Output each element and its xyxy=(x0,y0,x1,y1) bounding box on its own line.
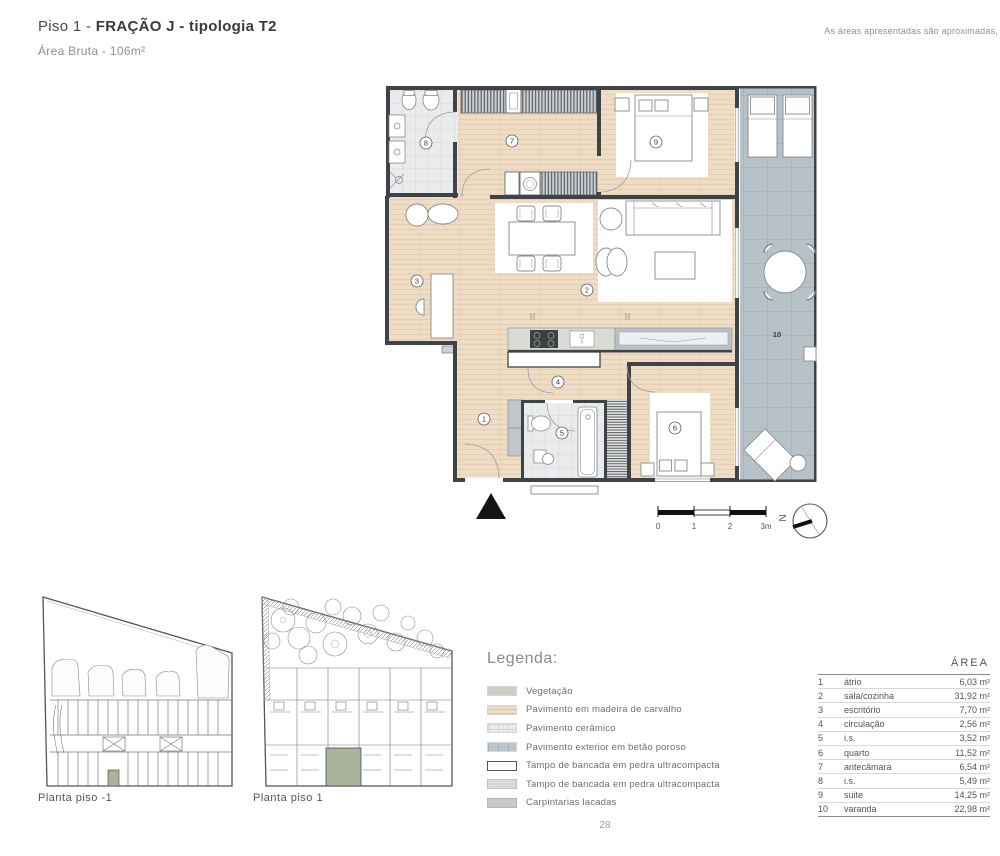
room-label-2: 2 xyxy=(581,284,593,296)
room-label-5: 5 xyxy=(556,427,568,439)
legend-title: Legenda: xyxy=(487,650,787,668)
svg-text:6: 6 xyxy=(673,424,677,433)
lacquered-carpentry-swatch xyxy=(487,798,517,808)
stone-counter-gray-swatch xyxy=(487,779,517,789)
vegetation-swatch xyxy=(487,686,517,696)
table-row: 3escritório7,70 m² xyxy=(818,703,990,717)
legend-item-porous-concrete: Pavimento exterior em betão poroso xyxy=(487,738,787,757)
room-label-10: 10 xyxy=(773,330,781,339)
title-regular: Piso 1 - xyxy=(38,18,96,35)
approx-areas-note: As áreas apresentadas são aproximadas, xyxy=(824,26,998,36)
legend-item-stone-counter-gray: Tampo de bancada em pedra ultracompacta xyxy=(487,775,787,794)
svg-text:8: 8 xyxy=(424,139,428,148)
legend: Legenda: Vegetação Pavimento em madeira … xyxy=(487,650,787,812)
svg-text:4: 4 xyxy=(556,378,560,387)
ceramic-floor-swatch xyxy=(487,723,517,733)
table-row: 8i.s.5,49 m² xyxy=(818,774,990,788)
table-row: 4circulação2,56 m² xyxy=(818,718,990,732)
site-plan-minus1: Planta piso -1 xyxy=(28,590,240,806)
svg-text:2: 2 xyxy=(728,522,733,531)
table-row: 5i.s.3,52 m² xyxy=(818,732,990,746)
svg-text:1: 1 xyxy=(692,522,697,531)
svg-text:1: 1 xyxy=(482,415,486,424)
svg-text:5: 5 xyxy=(560,429,564,438)
porous-concrete-swatch xyxy=(487,742,517,752)
legend-item-ceramic-floor: Pavimento cerâmico xyxy=(487,719,787,738)
table-row: 1átrio6,03 m² xyxy=(818,675,990,689)
oak-floor-swatch xyxy=(487,705,517,715)
room-label-7: 7 xyxy=(506,135,518,147)
legend-item-oak-floor: Pavimento em madeira de carvalho xyxy=(487,701,787,720)
area-table-header: ÁREA xyxy=(818,655,990,675)
room-label-9: 9 xyxy=(650,136,662,148)
legend-item-vegetation: Vegetação xyxy=(487,682,787,701)
site-plan-minus1-caption: Planta piso -1 xyxy=(38,792,112,804)
table-row: 2sala/cozinha31,92 m² xyxy=(818,689,990,703)
svg-text:9: 9 xyxy=(654,138,658,147)
room-label-3: 3 xyxy=(411,275,423,287)
room-label-8: 8 xyxy=(420,137,432,149)
legend-item-lacquered-carpentry: Carpintarias lacadas xyxy=(487,794,787,813)
site-plan-1-caption: Planta piso 1 xyxy=(253,792,323,804)
svg-text:N: N xyxy=(778,514,789,521)
scale-bar: 0 1 2 3m xyxy=(656,506,772,531)
room-label-4: 4 xyxy=(552,376,564,388)
entrance-arrow xyxy=(476,493,506,519)
page-title: Piso 1 - FRAÇÃO J - tipologia T2 xyxy=(38,18,277,35)
svg-text:7: 7 xyxy=(510,137,514,146)
gross-area-subtitle: Área Bruta - 106m² xyxy=(38,44,145,58)
title-bold: FRAÇÃO J - tipologia T2 xyxy=(96,18,277,35)
svg-text:10: 10 xyxy=(773,330,781,339)
site-plan-1: Planta piso 1 xyxy=(248,590,463,806)
stone-counter-white-swatch xyxy=(487,761,517,771)
north-arrow: N xyxy=(778,504,827,538)
room-label-6: 6 xyxy=(669,422,681,434)
table-row: 7antecâmara6,54 m² xyxy=(818,760,990,774)
svg-text:2: 2 xyxy=(585,286,589,295)
page-number: 28 xyxy=(0,820,1000,831)
floor-plan-page: Piso 1 - FRAÇÃO J - tipologia T2 Área Br… xyxy=(0,0,1000,856)
table-row: 6quarto11,52 m² xyxy=(818,746,990,760)
main-floor-plan: 1 2 3 4 5 6 7 8 9 10 0 1 2 3m xyxy=(380,80,840,546)
svg-text:0: 0 xyxy=(656,522,661,531)
svg-text:3: 3 xyxy=(415,277,419,286)
table-row: 9suite14,25 m² xyxy=(818,789,990,803)
highlighted-unit xyxy=(326,748,361,786)
legend-item-stone-counter-white: Tampo de bancada em pedra ultracompacta xyxy=(487,756,787,775)
svg-text:3m: 3m xyxy=(760,522,771,531)
table-row: 10varanda22,98 m² xyxy=(818,803,990,817)
area-table: ÁREA 1átrio6,03 m² 2sala/cozinha31,92 m²… xyxy=(818,655,990,817)
room-label-1: 1 xyxy=(478,413,490,425)
